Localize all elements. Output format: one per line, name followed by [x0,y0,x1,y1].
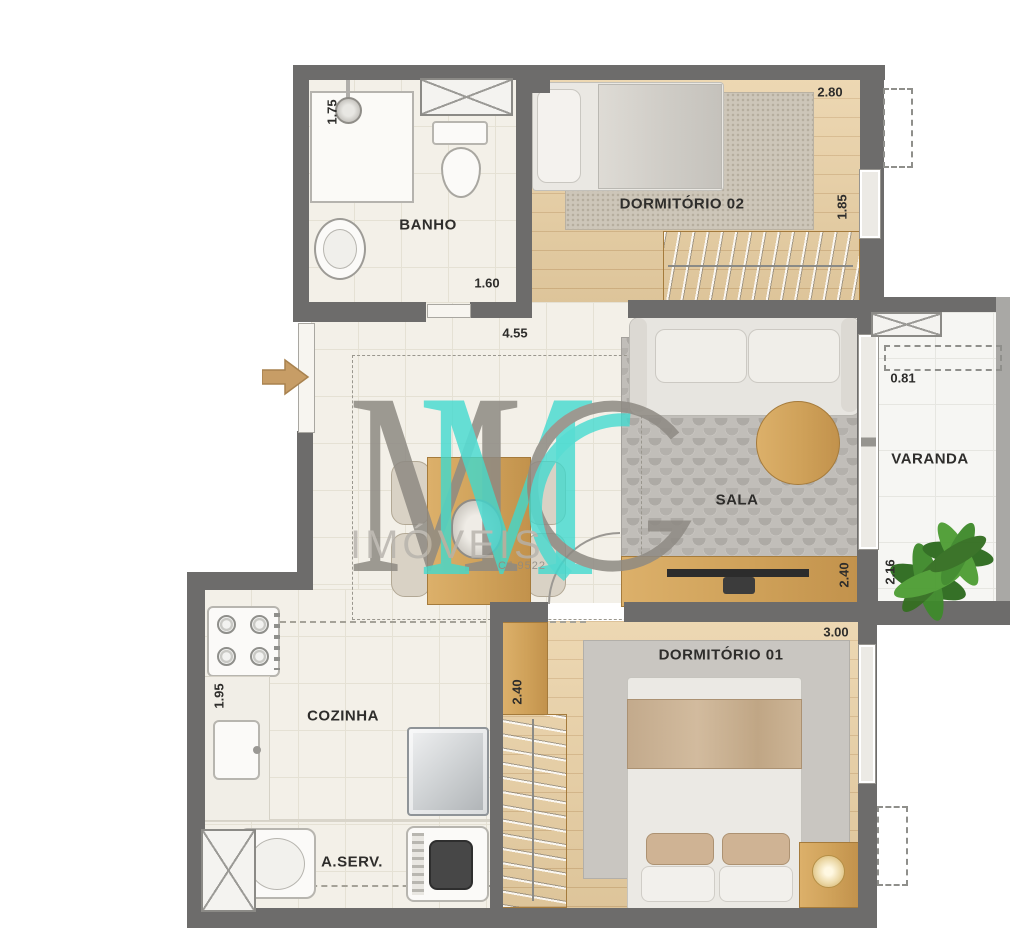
toilet-tank [432,121,488,145]
wall-varanda-top [860,297,1010,312]
burner-icon [250,647,269,666]
shaft-aserv [201,829,256,912]
wardrobe-dorm01 [502,714,567,908]
room-label-banho: BANHO [399,217,457,234]
burner-icon [250,615,269,634]
wardrobe-dorm01-rail [532,719,534,901]
tv-base [723,577,755,594]
wardrobe-dorm02 [663,231,860,304]
floor-plan: BANHO DORMITÓRIO 02 SALA VARANDA COZINHA… [0,0,1024,940]
bed-pillow-tan [722,833,790,865]
dim-sala-depth: 2.40 [837,562,852,587]
entrance-arrow-icon [262,357,310,397]
wall-banho-left [293,65,309,318]
wall-bottom [187,908,877,928]
bed-pillow-tan [646,833,714,865]
dim-dorm01-depth: 2.40 [510,679,525,704]
dim-banho-length: 1.60 [474,276,499,291]
logo-watermark: M M IMÓVEIS CJ 9522 [330,368,708,586]
plant-icon [883,502,1001,628]
banho-sink-basin [323,229,357,269]
shaft-varanda [871,312,942,337]
dim-cozinha-width: 1.95 [212,683,227,708]
glass-door-varanda [858,334,879,550]
ac-unit-dashed-dorm02 [883,88,913,168]
dim-dorm02-depth: 1.85 [835,194,850,219]
wardrobe-dorm02-rail [668,265,853,267]
banho-door [427,304,471,318]
room-label-dormitorio-02: DORMITÓRIO 02 [620,196,745,213]
wall-dorm02-bottom [628,300,860,318]
wall-banho-bottom-right [470,302,532,318]
lamp-icon [812,855,845,888]
laundry-tank-basin [249,838,305,890]
sofa-cushion-right [748,329,840,383]
washing-machine-door [429,840,473,890]
wall-top [293,65,885,80]
room-label-sala: SALA [716,492,759,509]
stove-knobs [274,613,280,670]
burner-icon [217,647,236,666]
window-dorm01 [858,644,876,784]
dim-varanda-length: 2.16 [883,559,898,584]
side-table-round [756,401,840,485]
burner-icon [217,615,236,634]
room-label-aserv: A.SERV. [321,854,383,871]
dim-dorm01-width: 3.00 [823,625,848,640]
bed-pillow-white [719,866,793,902]
bed-pillow-white [641,866,715,902]
room-label-cozinha: COZINHA [307,708,379,725]
wall-dorm01-top-right [624,602,877,622]
dim-living-width: 4.55 [502,326,527,341]
room-label-varanda: VARANDA [891,451,968,468]
bed-single-blanket [598,84,722,189]
wall-banho-dorm02 [516,65,532,318]
window-dorm02 [859,169,881,239]
dim-dorm02-width: 2.80 [817,85,842,100]
ac-dashed-varanda [884,345,1002,371]
ac-unit-dashed-dorm01 [877,806,908,886]
stove [207,606,280,677]
logo-license: CJ 9522 [498,560,546,572]
washing-machine-panel [412,833,424,895]
kitchen-faucet [253,746,261,754]
wall-banho-bottom-left [293,302,426,322]
wall-column [516,65,550,93]
wall-dorm01-left [490,602,503,928]
shaft-top [420,78,513,116]
room-label-dormitorio-01: DORMITÓRIO 01 [659,647,784,664]
dim-banho-width: 1.75 [325,99,340,124]
dim-varanda-width: 0.81 [890,371,915,386]
sofa-armrest-right [841,318,858,412]
wall-left-mid [297,431,313,590]
wall-left-step [187,572,313,590]
bed-single-pillow [537,89,581,183]
bed-double-blanket [627,699,802,769]
fridge [407,727,489,816]
